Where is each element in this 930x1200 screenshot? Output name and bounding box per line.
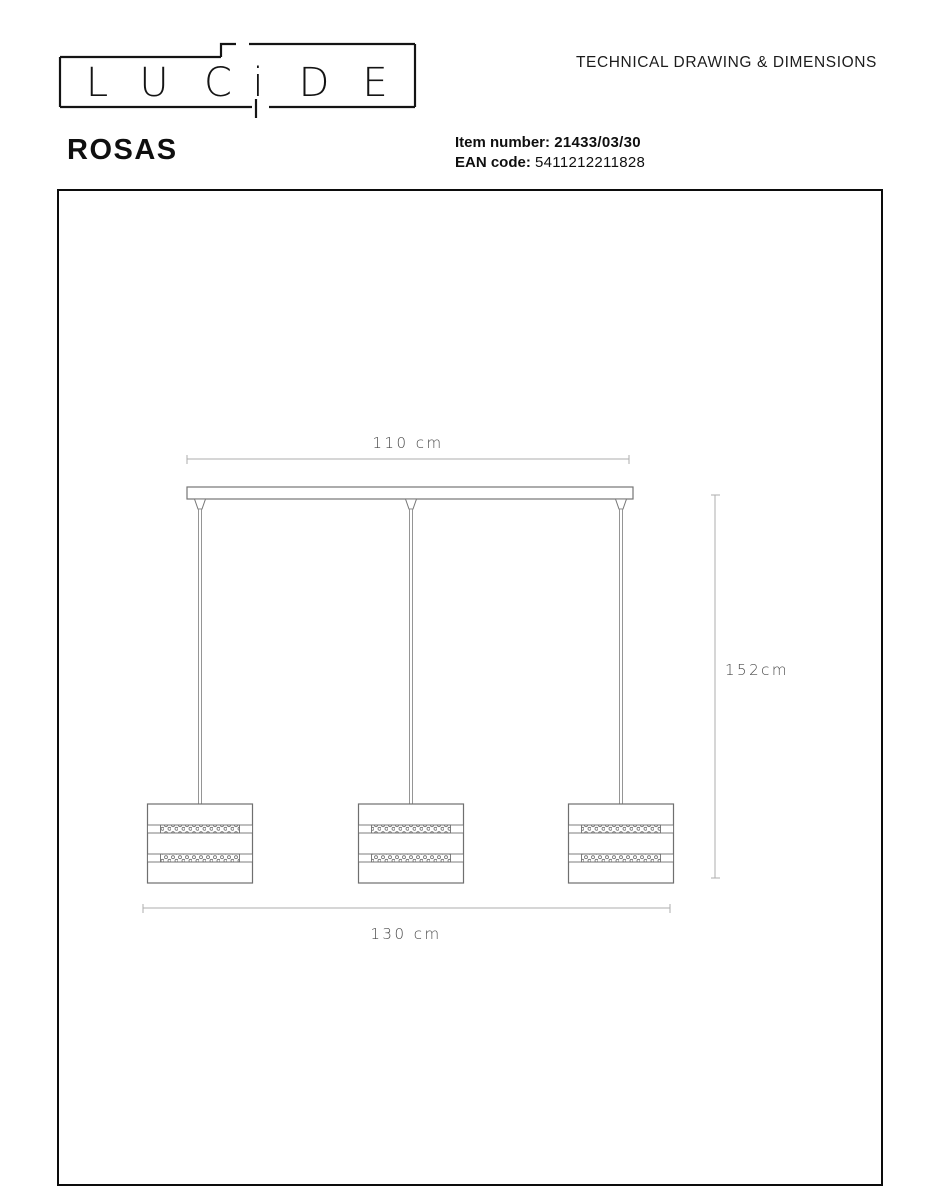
document-title: TECHNICAL DRAWING & DIMENSIONS bbox=[576, 54, 877, 72]
spec-sheet-page: L U C i D E TECHNICAL DRAWING & DIMENSIO… bbox=[0, 0, 930, 1200]
dimension-line-110 bbox=[187, 455, 629, 464]
pendant-cord-left bbox=[199, 509, 202, 804]
lampshade-middle bbox=[359, 804, 464, 883]
logo-letter-c: C bbox=[204, 60, 232, 106]
logo-letter-l: L bbox=[86, 60, 108, 106]
logo-letter-d: D bbox=[299, 60, 330, 106]
ean-code-label: EAN code: bbox=[455, 154, 531, 171]
ean-code-row: EAN code: 5411212211828 bbox=[455, 153, 645, 173]
ean-code-value: 5411212211828 bbox=[535, 154, 645, 171]
drawing-frame: 110 cm bbox=[57, 189, 883, 1186]
item-info-block: Item number: 21433/03/30 EAN code: 54112… bbox=[455, 133, 645, 172]
ceiling-canopy bbox=[187, 487, 633, 499]
lampshade-left bbox=[148, 804, 253, 883]
logo-letter-i: i bbox=[252, 60, 263, 106]
suspension-cones bbox=[195, 499, 627, 509]
logo-letter-u: U bbox=[139, 60, 168, 106]
suspension-cone-left bbox=[195, 499, 206, 509]
item-number-label: Item number: bbox=[455, 134, 550, 151]
lucide-logo: L U C i D E bbox=[55, 36, 425, 131]
item-number-row: Item number: 21433/03/30 bbox=[455, 133, 645, 153]
suspension-cone-middle bbox=[406, 499, 417, 509]
dimension-line-152 bbox=[711, 495, 720, 878]
dimension-label-152cm: 152cm bbox=[725, 661, 789, 679]
pendant-cord-middle bbox=[410, 509, 413, 804]
pendant-cords bbox=[199, 509, 623, 804]
lucide-logo-letters: L U C i D E bbox=[86, 60, 388, 106]
dimension-label-130cm: 130 cm bbox=[370, 925, 441, 943]
lampshade-right bbox=[569, 804, 674, 883]
product-name: ROSAS bbox=[67, 134, 178, 167]
dimension-line-130 bbox=[143, 904, 670, 913]
suspension-cone-right bbox=[616, 499, 627, 509]
item-number-value: 21433/03/30 bbox=[554, 134, 641, 151]
logo-letter-e: E bbox=[362, 60, 387, 106]
pendant-cord-right bbox=[620, 509, 623, 804]
lampshades bbox=[148, 804, 674, 883]
dimension-label-110cm: 110 cm bbox=[372, 434, 443, 452]
technical-drawing: 110 cm bbox=[59, 191, 881, 1184]
